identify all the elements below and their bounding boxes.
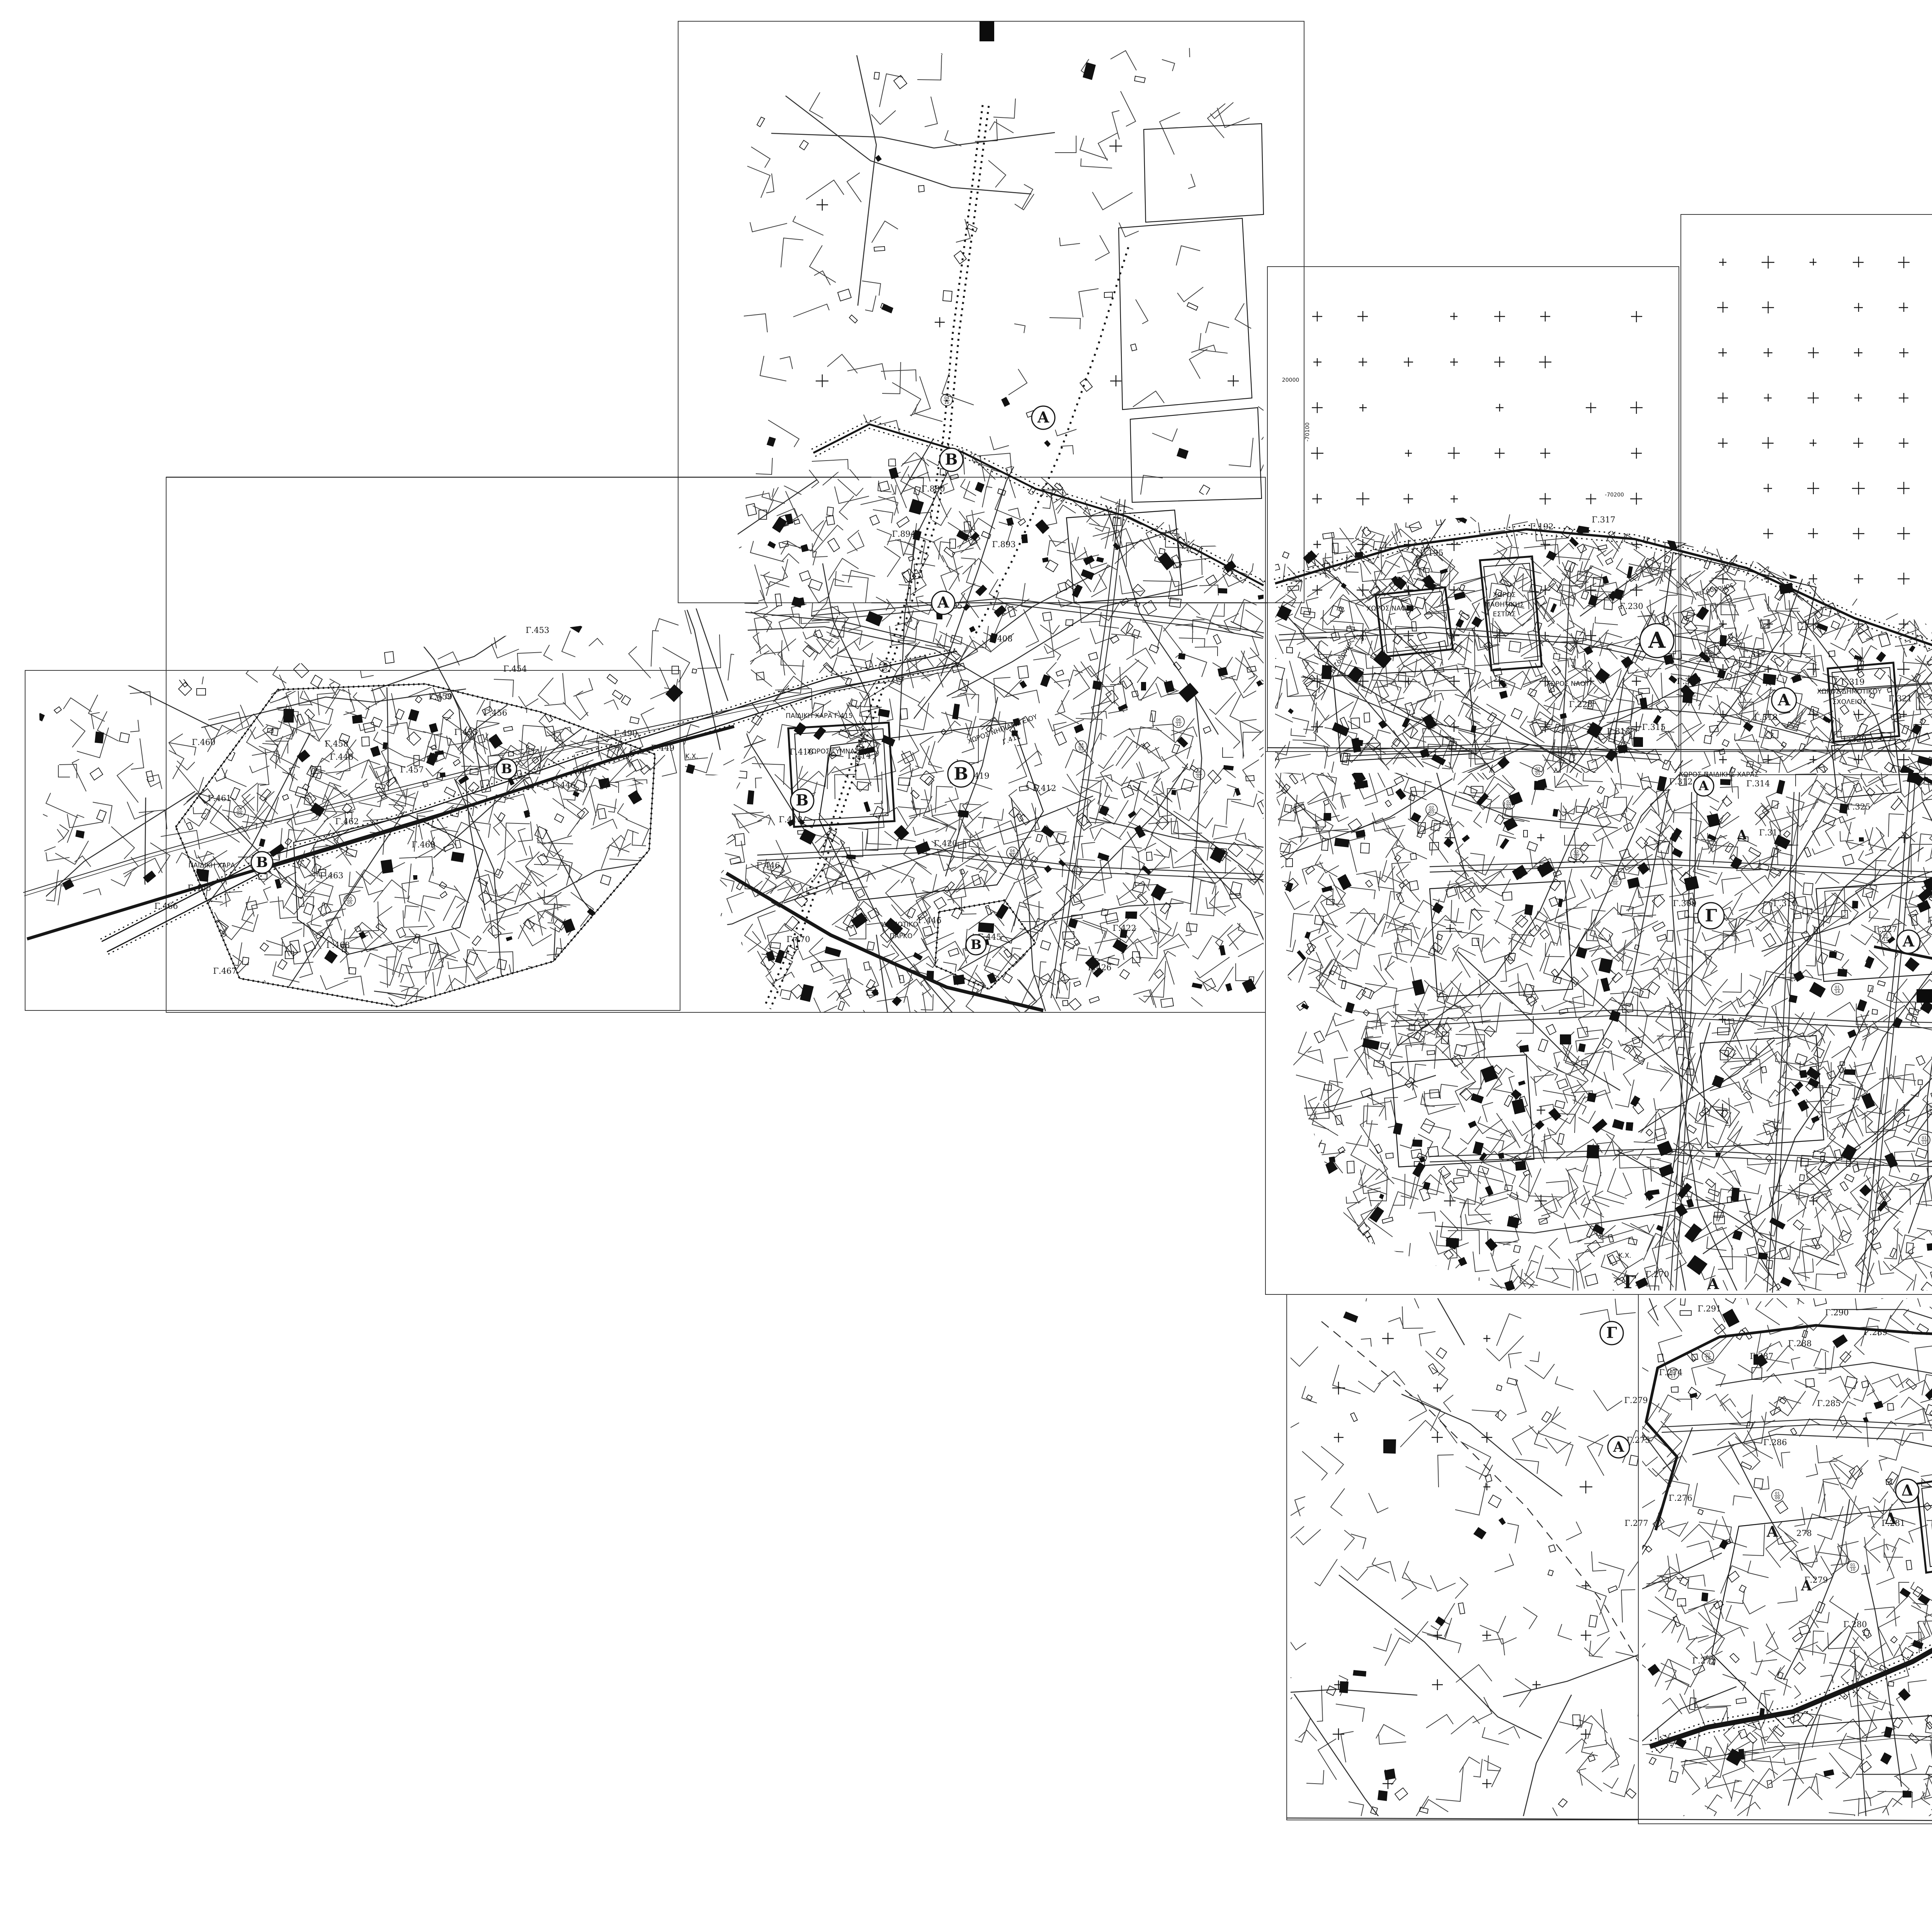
grid-coordinate-label: -70100 (1304, 422, 1311, 442)
block-number-label: Γ.412 (1032, 784, 1056, 793)
block-number-label: Γ.285 (1817, 1399, 1840, 1408)
block-number-label: Γ.311 (1759, 828, 1782, 837)
parcel-fraction-label: 02 (1429, 806, 1434, 810)
block-number-label: Γ.276 (1668, 1493, 1692, 1503)
parcel-fraction-label: 01 (1930, 1105, 1932, 1109)
block-number-label: Γ.291 (1697, 1304, 1721, 1313)
block-number-label: Γ.287 (1750, 1352, 1773, 1361)
block-number-label: Γ.453 (526, 626, 549, 635)
block-number-label: Γ.469 (412, 840, 435, 849)
parcel-fraction-label: 06 (1197, 770, 1202, 774)
block-number-label: Γ.894 (892, 529, 915, 539)
parcel-fraction-label: 12 (1176, 723, 1181, 727)
parcel-fraction-label: 01 (1883, 933, 1888, 937)
parcel-fraction-label: 05 (237, 808, 242, 812)
parcel-fraction-label: 17 (1883, 938, 1888, 942)
block-number-label: Γ.890 (921, 484, 945, 493)
parcel-fraction-label: 06 (1176, 718, 1181, 722)
block-number-label: Γ.467 (213, 966, 236, 976)
block-number-label: Γ.315 (1642, 723, 1665, 732)
section-letter-label: Γ (1624, 1272, 1636, 1293)
block-number-label: Γ.272 (1692, 1656, 1716, 1665)
parcel-fraction-label: 02 (1507, 800, 1512, 804)
place-name-label: ΜΑΘΗΤΙΚΗΣ (1485, 601, 1524, 609)
block-number-label: Γ.230 (1619, 602, 1643, 611)
parcel-fraction-label: 02 (1706, 1352, 1711, 1357)
block-number-label: Γ.465 (187, 883, 211, 893)
block-number-label: Γ.893 (992, 540, 1015, 549)
section-letter-label: Α (1613, 1439, 1624, 1455)
parcel-fraction-label: 03 (1429, 810, 1434, 815)
place-name-label: ΠΑΙΔΙΚΗ ΧΑΡΑ Γ.415 (786, 712, 852, 720)
grid-coordinate-label: -70200 (1605, 492, 1624, 498)
section-letter-label: Β (501, 761, 512, 776)
block-number-label: Γ.470 (786, 935, 810, 944)
parcel-fraction-label: 01 (1922, 1136, 1927, 1140)
parcel-fraction-label: 18 (1706, 1357, 1711, 1361)
block-number-label: Γ.288 (1788, 1339, 1811, 1348)
scanned-cadastral-map: Γ.416Γ.414Γ.419Γ.418Γ.420Γ.446Γ.446Γ.445… (0, 0, 1932, 1932)
block-number-label: Γ.192 (1530, 522, 1553, 531)
block-number-label: Γ.462 (335, 817, 359, 826)
parcel-fraction-label: 01 (1010, 854, 1015, 858)
block-number-label: Γ.458 (325, 739, 348, 748)
block-number-label: Γ.317 (1592, 515, 1615, 524)
block-number-label: Γ.277 (1624, 1519, 1648, 1528)
section-letter-label: Α (1037, 409, 1049, 427)
block-number-label: Γ.455 (454, 728, 478, 737)
parcel-fraction-label: 10 (944, 401, 949, 405)
block-number-label: Γ.270 (1645, 1270, 1669, 1279)
block-number-label: Γ.456 (483, 708, 507, 718)
block-number-label: Γ.446 (756, 861, 780, 870)
parcel-fraction-label: 07 (1574, 855, 1579, 859)
section-letter-label: Γ (1705, 905, 1717, 925)
block-number-label: Γ.463 (320, 871, 343, 880)
parcel-fraction-label: 02 (1079, 747, 1084, 752)
section-letter-label: Α (1707, 1275, 1719, 1293)
block-number-label: Γ.457 (400, 765, 423, 774)
block-number-label: Γ.448 (330, 752, 353, 762)
section-letter-label: Α (1801, 1578, 1812, 1594)
block-number-label: Γ.321 (1888, 694, 1912, 703)
place-name-label: ΧΩΡΟΣ ΝΑΟΥ (1367, 605, 1410, 612)
section-letter-label: Α (1902, 933, 1915, 951)
parcel-fraction-label: 10 (1850, 1568, 1855, 1572)
block-number-label: Γ.325 (1847, 802, 1870, 811)
block-number-label: Γ.422 (1112, 923, 1136, 933)
parcel-fraction-label: 02 (1613, 877, 1618, 881)
block-number-label: Γ.418 (779, 815, 802, 824)
block-number-label: Γ.420 (934, 839, 957, 848)
block-number-label: Γ.289 (1864, 1328, 1887, 1337)
scan-artifact-blob (980, 21, 994, 41)
place-name-label: ΣΧΟΛΕΙΟΥ (1833, 698, 1867, 706)
block-number-label: Γ.318 (1754, 713, 1777, 722)
parcel-fraction-label: 12 (1922, 1141, 1927, 1145)
place-name-label: Κ.Χ. (1618, 1252, 1631, 1260)
block-number-label: Γ.459 (429, 692, 452, 701)
section-letter-label: Δ (1901, 1482, 1913, 1500)
grid-coordinate-label: 20000 (1282, 377, 1299, 383)
block-number-label: Γ.313 (1607, 727, 1630, 736)
place-name-label: ΧΩΡΟΣ ΝΑΟΥ (1546, 680, 1590, 688)
block-number-label: Γ.309 (1673, 899, 1696, 908)
cadastral-map-canvas: Γ.416Γ.414Γ.419Γ.418Γ.420Γ.446Γ.446Γ.445… (0, 0, 1932, 1932)
parcel-fraction-label: 03 (237, 812, 242, 816)
parcel-fraction-label: 04 (944, 396, 949, 400)
block-number-label: Γ.310 (1773, 899, 1797, 908)
block-number-label: Γ.317 (1742, 650, 1766, 659)
place-name-label: ΔΗΜΟΤΙΚΟ (883, 921, 918, 929)
block-number-label: Γ.195 (1420, 548, 1443, 558)
parcel-fraction-label: 13 (1930, 1110, 1932, 1114)
place-name-label: ΠΑΡΚΟ (889, 932, 912, 940)
parcel-fraction-label: 17 (1671, 1374, 1676, 1379)
section-letter-label: Β (796, 792, 809, 810)
block-number-label: Γ.460 (192, 738, 215, 747)
parcel-fraction-label: 04 (883, 663, 888, 667)
block-number-label: Γ.228 (1569, 700, 1592, 709)
parcel-fraction-label: 04 (1079, 743, 1084, 747)
block-number-label: Γ.316 (1677, 677, 1700, 686)
block-number-label: Γ.426 (1088, 963, 1111, 972)
block-number-label: Γ.320 (1843, 735, 1866, 744)
block-number-label: Γ.461 (207, 794, 231, 803)
block-number-label: Γ.466 (154, 901, 178, 911)
block-number-label: Γ.275 (1626, 1435, 1650, 1445)
parcel-fraction-label: 02 (1507, 804, 1512, 809)
block-number-label: Γ.286 (1763, 1438, 1787, 1447)
section-letter-label: Β (945, 451, 958, 469)
section-letter-label: Α (1698, 778, 1709, 793)
block-number-label: Γ.446 (918, 916, 941, 925)
section-letter-label: Δ (1884, 1510, 1896, 1528)
parcel-fraction-label: 02 (1574, 850, 1579, 854)
block-number-label: Γ.279 (1624, 1396, 1648, 1405)
place-name-label: Κ.Χ. (1354, 634, 1367, 641)
block-number-label: Γ.446 (552, 781, 575, 790)
block-number-label: Γ.490 (614, 729, 637, 738)
section-letter-label: Γ (1606, 1324, 1617, 1342)
parcel-fraction-label: 08 (1613, 882, 1618, 886)
block-number-label: Γ.314 (1746, 779, 1770, 788)
block-number-label: 278 (1796, 1529, 1812, 1538)
section-letter-label: Β (971, 937, 982, 952)
block-number-label: Γ.468 (326, 940, 350, 950)
parcel-fraction-label: 05 (347, 901, 352, 905)
place-name-label: ΧΩΡΟΣ ΔΗΜΟΤΙΚΟΥ (1817, 688, 1882, 696)
section-letter-label: Α (937, 594, 949, 612)
scan-artifact-blob (1917, 989, 1932, 1003)
parcel-fraction-label: 01 (1775, 1492, 1780, 1496)
parcel-fraction-label: 02 (1197, 775, 1202, 779)
section-letter-label: Β (954, 764, 968, 784)
parcel-fraction-label: 02 (1536, 767, 1541, 771)
block-number-label: Γ.327 (1873, 925, 1897, 934)
parcel-fraction-label: 04 (1010, 849, 1015, 853)
block-number-label: Γ.280 (1843, 1620, 1867, 1629)
parcel-fraction-label: 05 (347, 896, 352, 901)
place-name-label: ΧΩΡΟΣ (1493, 591, 1515, 599)
block-number-label: Γ.290 (1825, 1308, 1849, 1317)
section-letter-label: Β (256, 854, 268, 871)
parcel-fraction-label: 01 (1850, 1563, 1855, 1567)
block-number-label: Γ.454 (503, 664, 527, 673)
place-name-label: ΕΣΤΙΑΣ (1493, 611, 1515, 618)
section-letter-label: Α (1777, 690, 1791, 709)
parcel-fraction-label: 09 (1775, 1496, 1780, 1500)
place-name-label: Κ.Χ. (685, 753, 698, 760)
parcel-fraction-label: 02 (1671, 1370, 1676, 1374)
block-number-label: Γ.408 (989, 634, 1012, 643)
section-letter-label: Α (1648, 627, 1666, 653)
block-number-label: Γ.449 (651, 743, 674, 753)
place-name-label: ΧΩΡΟΣ ΠΑΙΔΙΚΗΣ ΧΑΡΑΣ (1679, 771, 1759, 779)
block-number-label: Γ.319 (1841, 677, 1864, 687)
parcel-fraction-label: 14 (1835, 990, 1840, 994)
place-name-label: ΠΑΙΔΙΚΗ ΧΑΡΑ (189, 862, 235, 869)
parcel-fraction-label: 01 (1835, 985, 1840, 990)
section-letter-label: Δ (1737, 827, 1747, 843)
section-letter-label: Α (1766, 1523, 1778, 1540)
parcel-fraction-label: 01 (1536, 772, 1541, 776)
parcel-fraction-label: 05 (883, 667, 888, 672)
